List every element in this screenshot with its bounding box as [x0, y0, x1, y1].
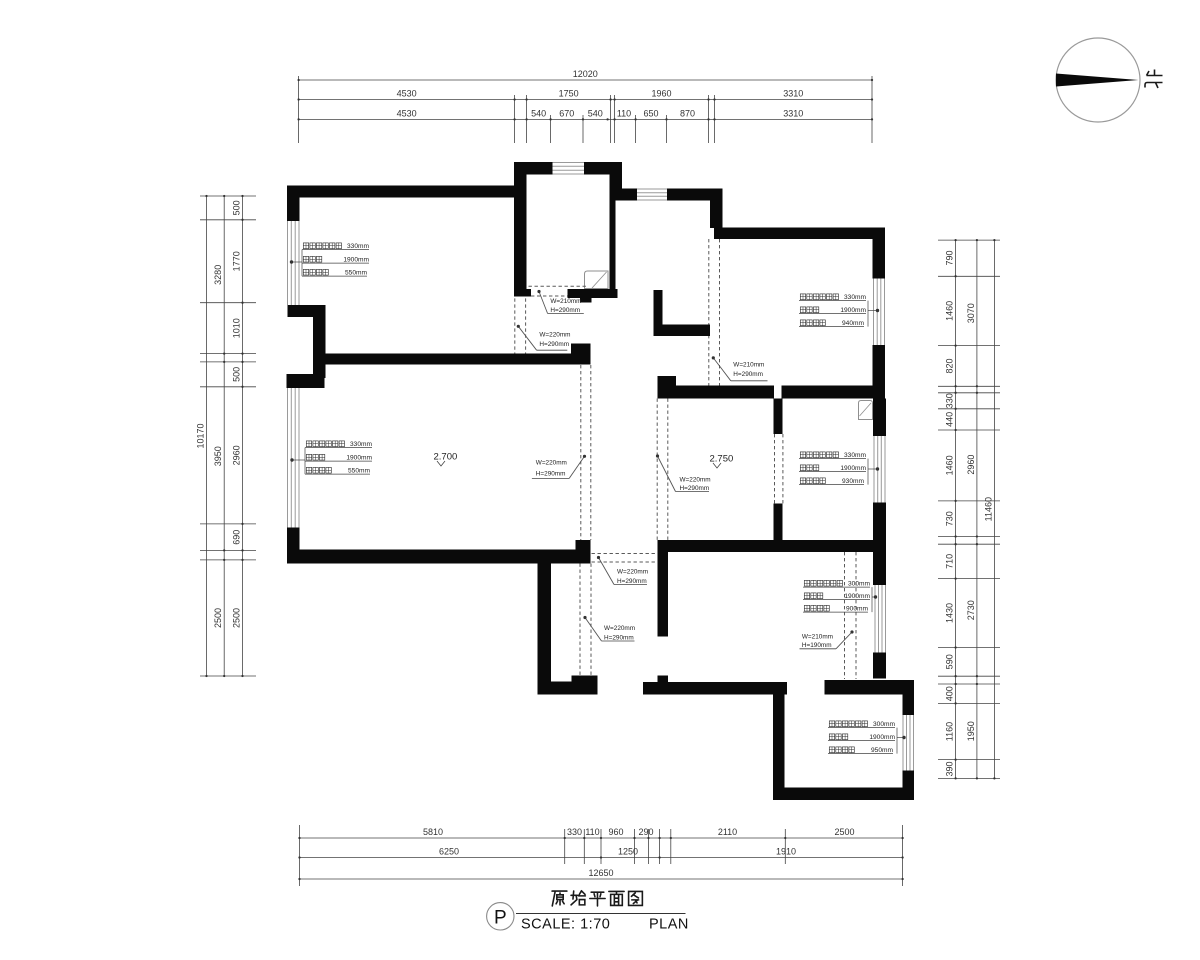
svg-text:330mm: 330mm [347, 243, 369, 250]
svg-text:330mm: 330mm [350, 441, 372, 448]
svg-text:2730: 2730 [966, 600, 976, 620]
svg-text:10170: 10170 [196, 423, 206, 448]
svg-text:H=290mm: H=290mm [550, 307, 580, 314]
svg-text:H=290mm: H=290mm [733, 371, 763, 378]
svg-text:690: 690 [232, 530, 242, 545]
svg-text:P: P [494, 908, 507, 929]
svg-text:330mm: 330mm [844, 294, 866, 301]
svg-text:11460: 11460 [983, 497, 993, 521]
svg-text:W=220mm: W=220mm [539, 332, 570, 339]
svg-text:3310: 3310 [783, 89, 803, 99]
svg-text:3950: 3950 [213, 446, 223, 466]
svg-text:1950: 1950 [966, 721, 976, 741]
svg-text:330: 330 [567, 827, 582, 837]
svg-text:1460: 1460 [945, 455, 955, 475]
svg-text:H=290mm: H=290mm [617, 578, 647, 585]
svg-text:300mm: 300mm [873, 721, 895, 728]
svg-text:330mm: 330mm [844, 452, 866, 459]
svg-text:6250: 6250 [439, 847, 459, 857]
svg-text:W=220mm: W=220mm [680, 477, 711, 484]
svg-text:670: 670 [559, 108, 574, 118]
svg-text:3310: 3310 [783, 108, 803, 118]
svg-text:540: 540 [588, 108, 603, 118]
svg-text:550mm: 550mm [348, 468, 370, 475]
svg-text:400: 400 [945, 686, 955, 701]
svg-text:H=290mm: H=290mm [536, 470, 566, 477]
svg-text:H=290mm: H=290mm [680, 485, 710, 492]
svg-text:1160: 1160 [945, 722, 955, 741]
svg-text:110: 110 [585, 827, 599, 837]
svg-text:1960: 1960 [651, 89, 671, 99]
svg-text:300mm: 300mm [848, 581, 870, 588]
svg-text:1900mm: 1900mm [840, 307, 866, 314]
svg-text:950mm: 950mm [871, 747, 893, 754]
svg-text:12020: 12020 [573, 69, 598, 79]
svg-text:330: 330 [945, 393, 955, 408]
svg-text:5810: 5810 [423, 827, 443, 837]
svg-text:1900mm: 1900mm [840, 465, 866, 472]
svg-text:590: 590 [945, 654, 955, 669]
svg-text:2960: 2960 [966, 455, 976, 475]
svg-text:1750: 1750 [559, 89, 579, 99]
svg-text:730: 730 [945, 511, 955, 526]
svg-text:540: 540 [531, 108, 546, 118]
svg-text:W=210mm: W=210mm [550, 298, 581, 305]
svg-text:1460: 1460 [945, 301, 955, 321]
svg-text:2.750: 2.750 [710, 454, 734, 465]
svg-text:1010: 1010 [232, 318, 242, 338]
svg-text:1770: 1770 [232, 251, 242, 271]
svg-text:2500: 2500 [232, 608, 242, 628]
svg-text:1430: 1430 [945, 603, 955, 623]
svg-text:390: 390 [945, 761, 955, 776]
svg-text:H=190mm: H=190mm [802, 642, 832, 649]
svg-text:440: 440 [945, 412, 955, 427]
svg-text:3280: 3280 [213, 265, 223, 285]
svg-text:W=220mm: W=220mm [536, 460, 567, 467]
svg-text:930mm: 930mm [842, 478, 864, 485]
svg-text:W=210mm: W=210mm [733, 361, 764, 368]
svg-text:12650: 12650 [588, 868, 613, 878]
svg-text:W=210mm: W=210mm [802, 634, 833, 641]
svg-text:790: 790 [945, 250, 955, 265]
svg-text:2500: 2500 [834, 827, 854, 837]
svg-text:710: 710 [945, 554, 955, 569]
svg-text:4530: 4530 [397, 89, 417, 99]
svg-text:2500: 2500 [213, 608, 223, 628]
svg-text:4530: 4530 [397, 108, 417, 118]
svg-text:500: 500 [232, 367, 242, 382]
svg-text:2.700: 2.700 [434, 452, 458, 463]
svg-text:650: 650 [643, 108, 658, 118]
svg-text:H=290mm: H=290mm [539, 341, 569, 348]
svg-text:W=220mm: W=220mm [604, 625, 635, 632]
svg-text:1910: 1910 [776, 847, 796, 857]
svg-text:1900mm: 1900mm [343, 257, 369, 264]
svg-text:W=220mm: W=220mm [617, 569, 648, 576]
svg-text:2960: 2960 [232, 445, 242, 465]
svg-text:900mm: 900mm [846, 606, 868, 613]
svg-text:870: 870 [680, 108, 695, 118]
svg-text:960: 960 [608, 827, 623, 837]
svg-text:PLAN: PLAN [649, 917, 689, 933]
svg-text:2110: 2110 [718, 827, 737, 837]
svg-text:1900mm: 1900mm [844, 593, 870, 600]
svg-text:3070: 3070 [966, 303, 976, 323]
svg-text:1900mm: 1900mm [346, 455, 372, 462]
svg-text:940mm: 940mm [842, 320, 864, 327]
svg-text:550mm: 550mm [345, 270, 367, 277]
svg-text:290: 290 [638, 827, 653, 837]
svg-text:110: 110 [617, 108, 631, 118]
svg-text:1900mm: 1900mm [869, 734, 895, 741]
svg-text:SCALE: 1:70: SCALE: 1:70 [521, 917, 610, 933]
svg-text:1250: 1250 [618, 847, 638, 857]
svg-text:820: 820 [945, 358, 955, 373]
svg-text:500: 500 [232, 200, 242, 215]
svg-text:H=290mm: H=290mm [604, 635, 634, 642]
